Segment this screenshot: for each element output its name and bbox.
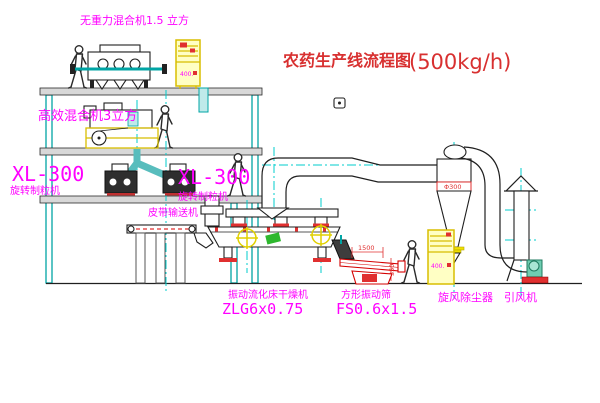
label-dryer-model: ZLG6x0.75 <box>222 300 303 318</box>
label-granulator-left-name: 旋转制粒机 <box>10 184 60 197</box>
worker-figure <box>155 106 173 148</box>
deck-length-dim: 1500 <box>358 244 375 252</box>
label-top-mixer: 无重力混合机1.5 立方 <box>80 13 189 27</box>
belt-conveyor <box>127 225 213 283</box>
gravity-free-mixer <box>70 45 167 89</box>
floor-slab <box>40 196 262 203</box>
exhaust-duct <box>258 158 437 219</box>
control-cabinet-top: 400. <box>176 40 200 89</box>
building-column <box>252 95 258 283</box>
label-cyclone: 旋风除尘器 <box>438 290 493 304</box>
label-fan: 引风机 <box>504 290 537 304</box>
control-cabinet-right: 400. <box>428 230 454 284</box>
page-title-capacity: (500kg/h) <box>409 50 511 74</box>
floor-slab <box>40 88 262 95</box>
cyclone-size-text: Φ300 <box>444 183 462 191</box>
small-equipment-symbol <box>334 98 345 108</box>
label-screen-model: FS0.6x1.5 <box>336 300 417 318</box>
label-mid-mixer: 高效混合机3立方 <box>38 108 137 124</box>
label-granulator-right-name: 旋转制粒机 <box>178 190 228 203</box>
label-belt-conveyor: 皮带输送机 <box>148 206 198 219</box>
screen-chute <box>332 240 354 259</box>
vibrating-screen: 1500 350 <box>332 235 405 284</box>
cabinet-top-text: 400. <box>180 71 193 78</box>
conveyor-chute <box>194 233 213 248</box>
label-granulator-right-model: XL-300 <box>178 165 250 189</box>
cabinet-right-text: 400. <box>431 263 444 270</box>
page-title: 农药生产线流程图 <box>282 51 411 70</box>
floor-slab <box>40 148 262 155</box>
downcomer-pipe <box>199 88 208 112</box>
flow-diagram: 400. <box>0 0 600 403</box>
label-granulator-left-model: XL-300 <box>12 162 84 186</box>
